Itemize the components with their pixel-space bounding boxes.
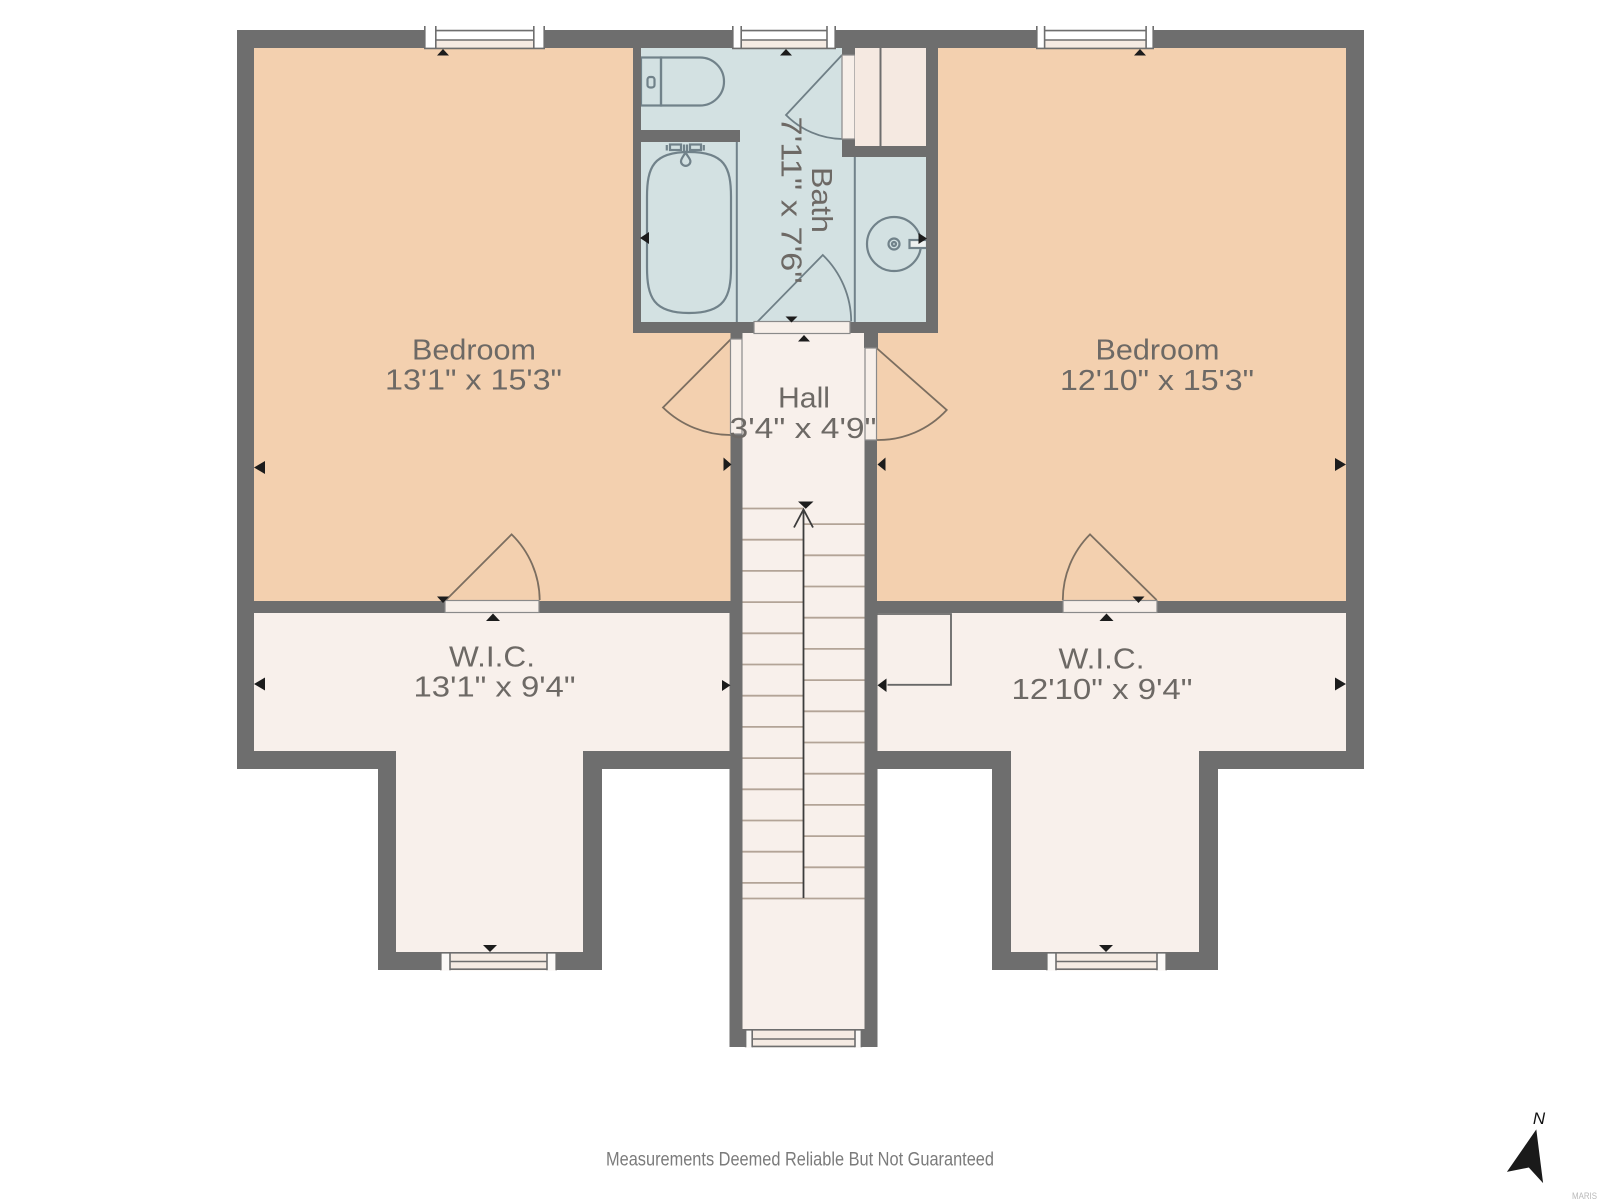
svg-text:W.I.C.: W.I.C. — [449, 642, 535, 674]
svg-text:12'10" x 15'3": 12'10" x 15'3" — [1060, 365, 1254, 397]
svg-text:3'4" x 4'9": 3'4" x 4'9" — [730, 413, 877, 445]
svg-text:13'1" x 9'4": 13'1" x 9'4" — [414, 672, 576, 704]
svg-text:MARIS: MARIS — [1572, 1191, 1597, 1200]
svg-text:W.I.C.: W.I.C. — [1059, 644, 1145, 676]
svg-text:13'1" x 15'3": 13'1" x 15'3" — [385, 365, 562, 397]
svg-text:7'11" x 7'6": 7'11" x 7'6" — [775, 117, 807, 284]
svg-text:Bath: Bath — [805, 167, 837, 233]
svg-text:Measurements Deemed Reliable B: Measurements Deemed Reliable But Not Gua… — [606, 1149, 994, 1171]
svg-text:12'10" x 9'4": 12'10" x 9'4" — [1012, 674, 1193, 706]
svg-text:Bedroom: Bedroom — [1096, 335, 1220, 367]
svg-text:Bedroom: Bedroom — [412, 335, 536, 367]
svg-text:N: N — [1533, 1109, 1546, 1128]
svg-text:Hall: Hall — [778, 383, 830, 415]
